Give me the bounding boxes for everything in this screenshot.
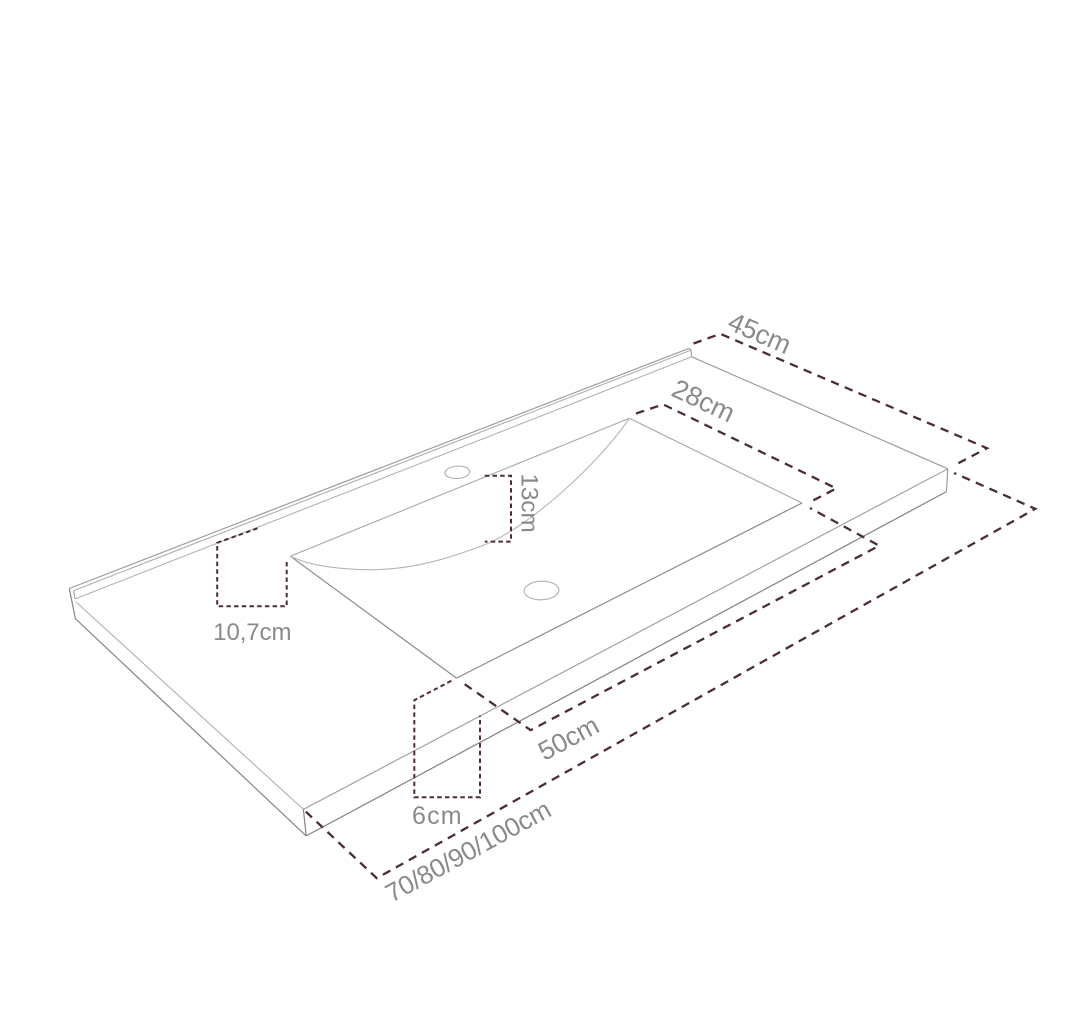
svg-text:45cm: 45cm	[724, 307, 796, 361]
svg-text:13cm: 13cm	[516, 473, 543, 532]
svg-text:70/80/90/100cm: 70/80/90/100cm	[380, 794, 556, 908]
svg-text:10,7cm: 10,7cm	[213, 619, 291, 646]
svg-text:28cm: 28cm	[667, 373, 739, 428]
svg-text:6cm: 6cm	[412, 802, 463, 830]
